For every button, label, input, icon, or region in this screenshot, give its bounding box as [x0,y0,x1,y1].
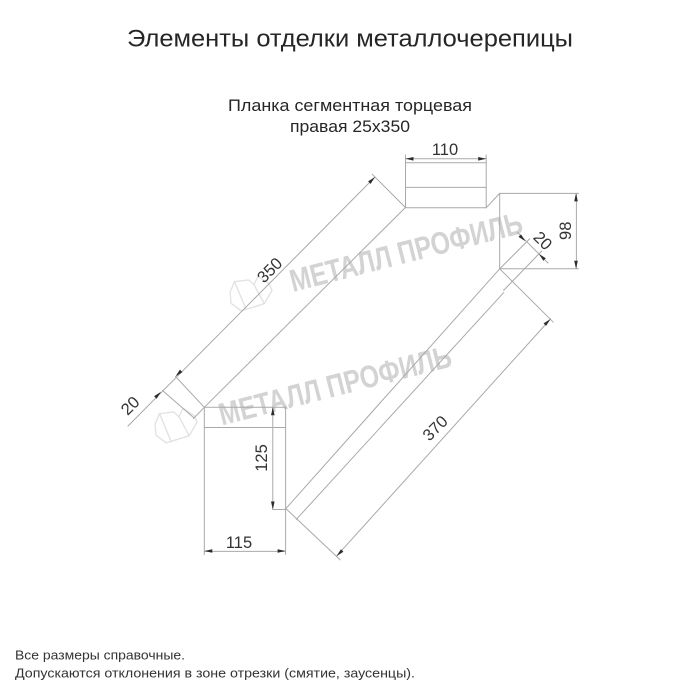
svg-text:правая 25х350: правая 25х350 [290,117,410,136]
svg-text:115: 115 [226,534,252,552]
svg-text:Планка сегментная торцевая: Планка сегментная торцевая [228,96,472,115]
svg-text:110: 110 [432,141,458,159]
svg-text:Все размеры справочные.: Все размеры справочные. [15,647,185,662]
svg-text:Допускаются отклонения в зоне: Допускаются отклонения в зоне отрезки (с… [15,665,415,680]
svg-text:98: 98 [557,222,575,240]
svg-text:125: 125 [253,444,271,472]
svg-text:Элементы отделки металлочерепи: Элементы отделки металлочерепицы [127,25,573,52]
